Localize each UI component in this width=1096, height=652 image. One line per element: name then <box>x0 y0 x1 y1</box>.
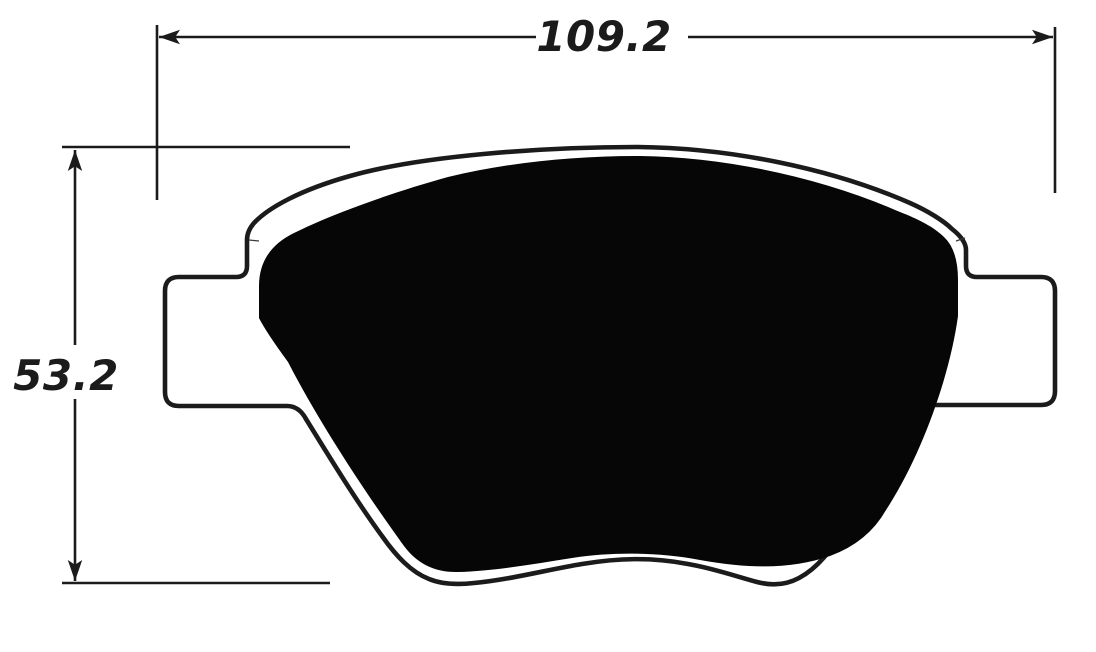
brake-pad-dimension-diagram: 109.2 53.2 <box>0 0 1096 652</box>
width-dimension-label: 109.2 <box>536 12 671 61</box>
diagram-svg: 109.2 53.2 <box>0 0 1096 652</box>
height-dimension-label: 53.2 <box>13 351 119 400</box>
